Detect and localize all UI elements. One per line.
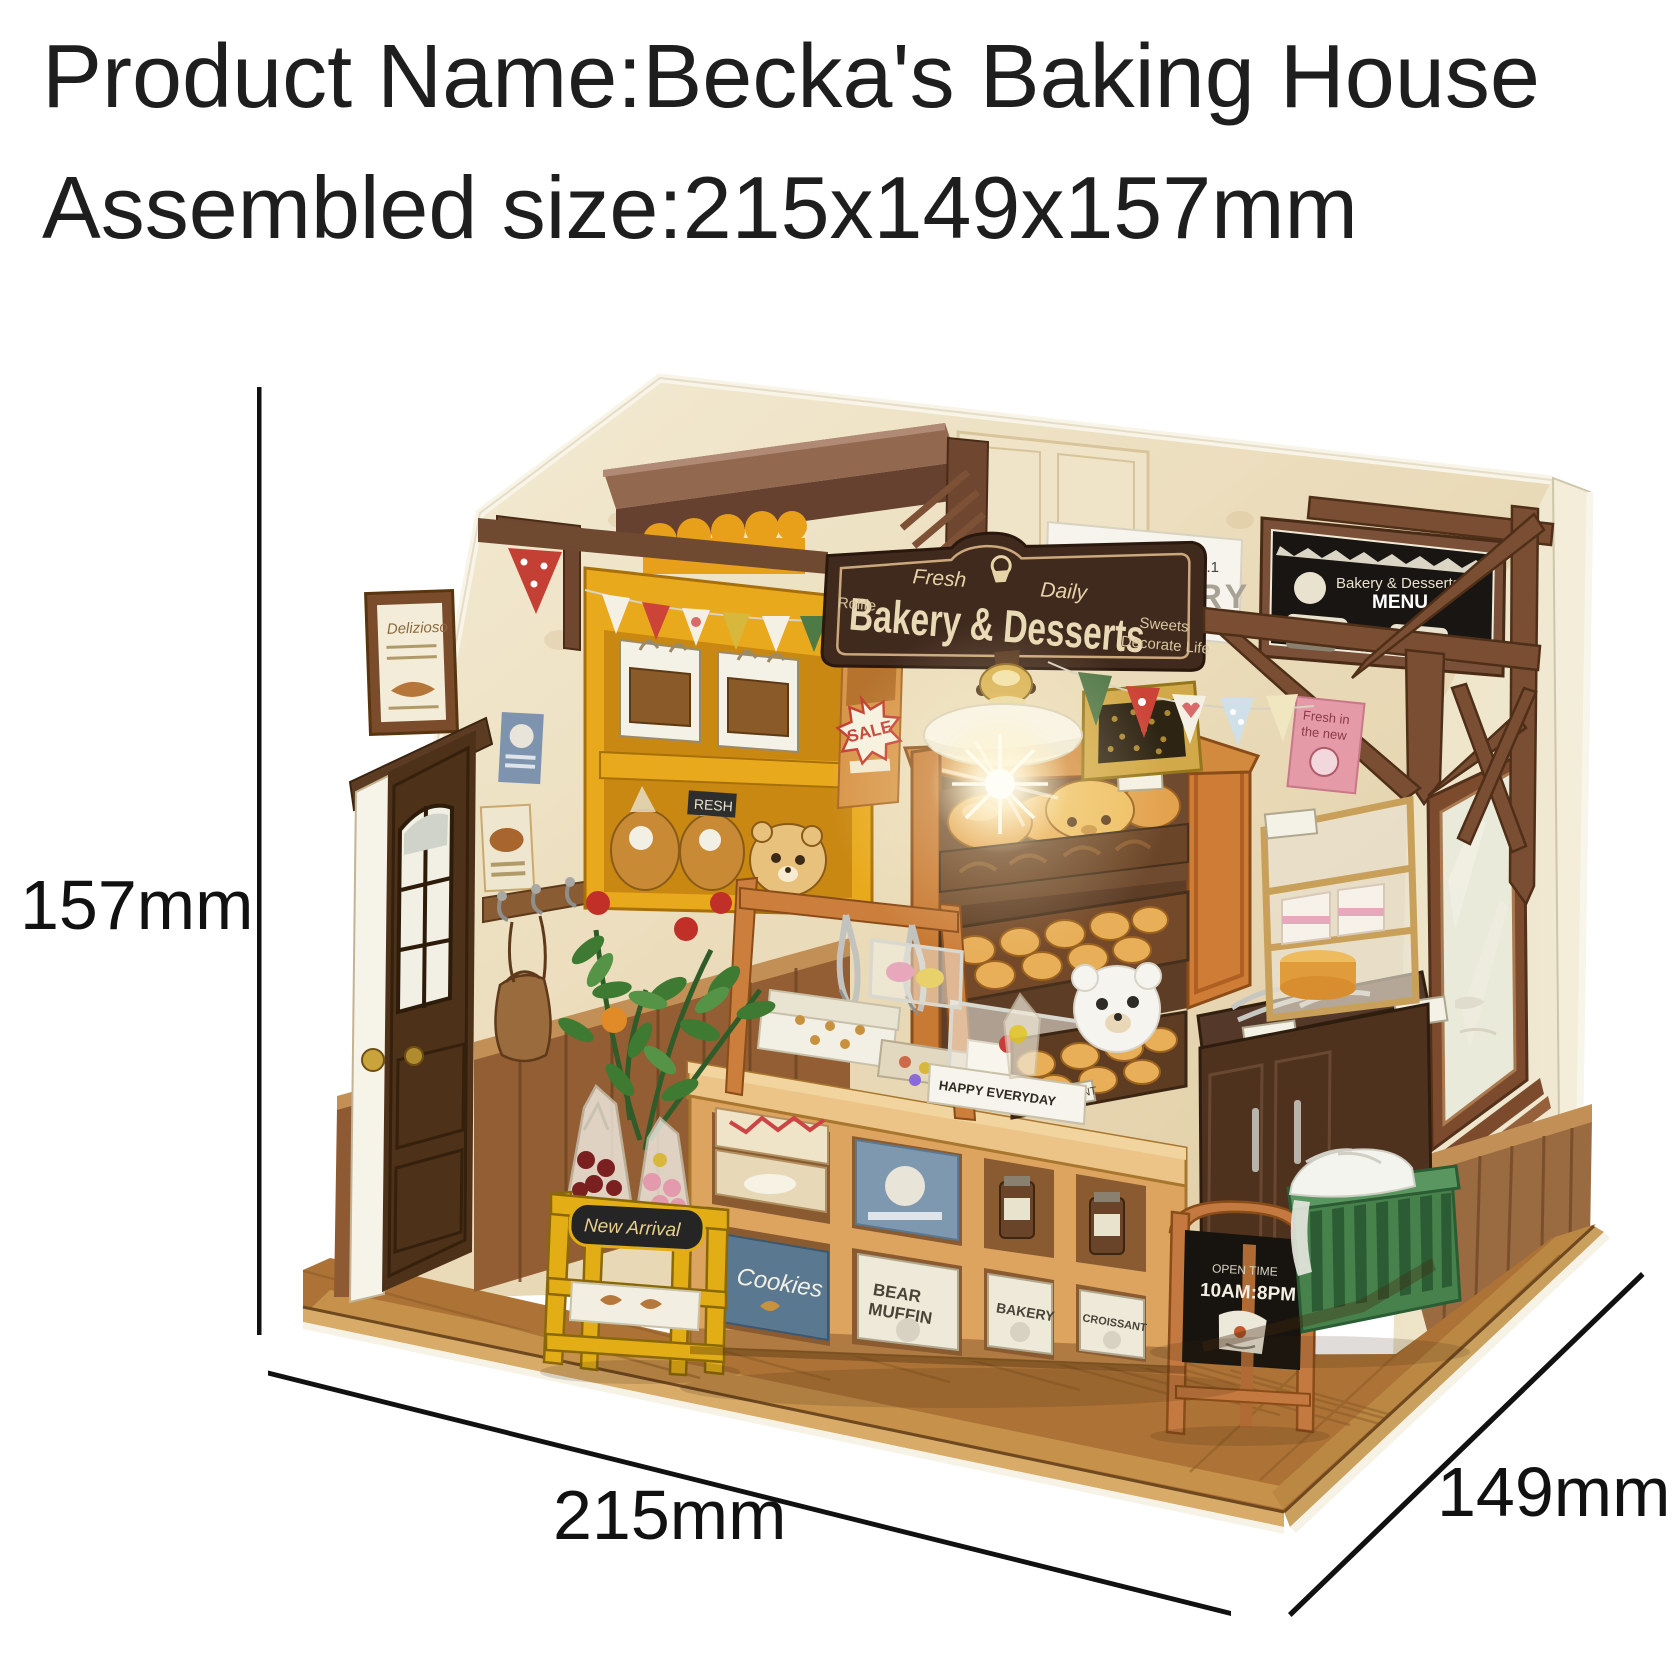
- svg-text:157mm: 157mm: [20, 866, 253, 944]
- svg-text:215mm: 215mm: [553, 1476, 786, 1554]
- svg-text:Fresh: Fresh: [912, 565, 967, 592]
- svg-text:Rolife: Rolife: [837, 594, 877, 614]
- svg-text:Assembled size:215x149x157mm: Assembled size:215x149x157mm: [42, 158, 1358, 257]
- svg-text:Delizioso: Delizioso: [387, 619, 448, 638]
- svg-text:RESH: RESH: [693, 796, 733, 815]
- svg-text:Bakery & Desserts: Bakery & Desserts: [1336, 575, 1460, 592]
- svg-text:149mm: 149mm: [1437, 1453, 1670, 1531]
- svg-text:MENU: MENU: [1372, 592, 1428, 613]
- svg-text:Product Name:Becka's Baking Ho: Product Name:Becka's Baking House: [42, 27, 1540, 127]
- svg-text:Daily: Daily: [1040, 578, 1090, 604]
